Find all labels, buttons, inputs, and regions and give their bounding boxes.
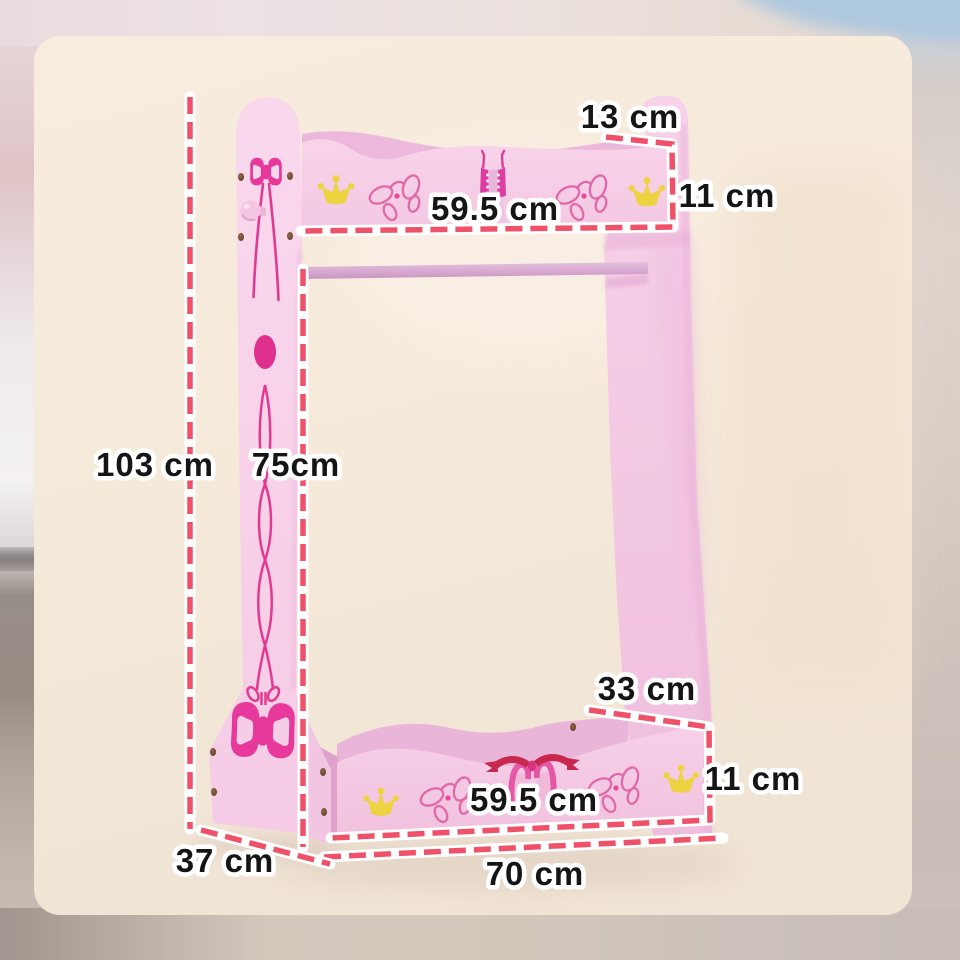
- svg-text:75cm: 75cm: [252, 446, 340, 483]
- svg-text:33 cm: 33 cm: [598, 670, 697, 707]
- svg-text:103 cm: 103 cm: [96, 446, 214, 483]
- svg-text:59.5 cm: 59.5 cm: [431, 190, 559, 227]
- svg-text:70 cm: 70 cm: [486, 855, 585, 892]
- svg-text:59.5 cm: 59.5 cm: [470, 781, 598, 818]
- svg-text:37 cm: 37 cm: [176, 842, 275, 879]
- svg-text:11 cm: 11 cm: [705, 760, 802, 797]
- svg-text:13 cm: 13 cm: [581, 98, 680, 135]
- svg-text:11 cm: 11 cm: [679, 177, 776, 214]
